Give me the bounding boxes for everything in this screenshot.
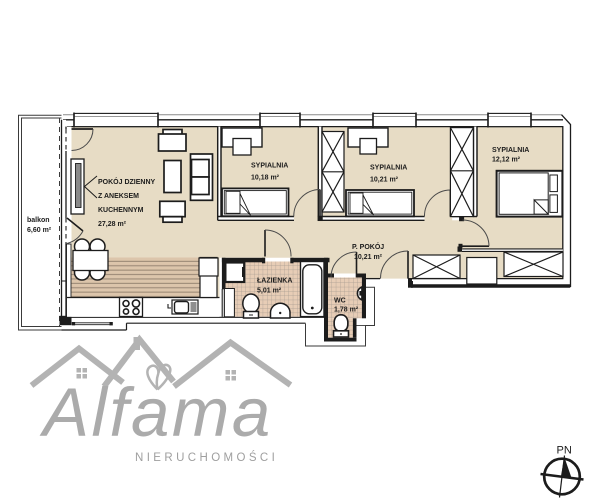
svg-text:P. POKÓJ: P. POKÓJ [352, 242, 384, 251]
svg-text:Alfama: Alfama [39, 374, 273, 451]
svg-text:6,60 m²: 6,60 m² [27, 227, 52, 234]
svg-text:Z ANEKSEM: Z ANEKSEM [98, 193, 139, 200]
svg-text:balkon: balkon [27, 217, 50, 224]
svg-text:10,21 m²: 10,21 m² [370, 177, 399, 184]
svg-text:12,12 m²: 12,12 m² [492, 157, 521, 164]
svg-text:WC: WC [334, 298, 346, 305]
svg-text:ŁAZIENKA: ŁAZIENKA [257, 278, 292, 285]
svg-text:KUCHENNYM: KUCHENNYM [98, 207, 144, 214]
svg-text:SYPIALNIA: SYPIALNIA [492, 147, 529, 154]
svg-text:PN: PN [557, 445, 572, 457]
svg-text:POKÓJ DZIENNY: POKÓJ DZIENNY [98, 177, 156, 186]
svg-text:1,78 m²: 1,78 m² [334, 307, 359, 314]
svg-text:27,28 m²: 27,28 m² [98, 221, 127, 228]
svg-text:5,01 m²: 5,01 m² [257, 288, 282, 295]
svg-text:NIERUCHOMOŚCI: NIERUCHOMOŚCI [135, 451, 278, 464]
svg-text:10,18 m²: 10,18 m² [251, 175, 280, 182]
svg-text:SYPIALNIA: SYPIALNIA [370, 165, 407, 172]
svg-text:SYPIALNIA: SYPIALNIA [251, 163, 288, 170]
svg-text:10,21 m²: 10,21 m² [354, 254, 383, 261]
